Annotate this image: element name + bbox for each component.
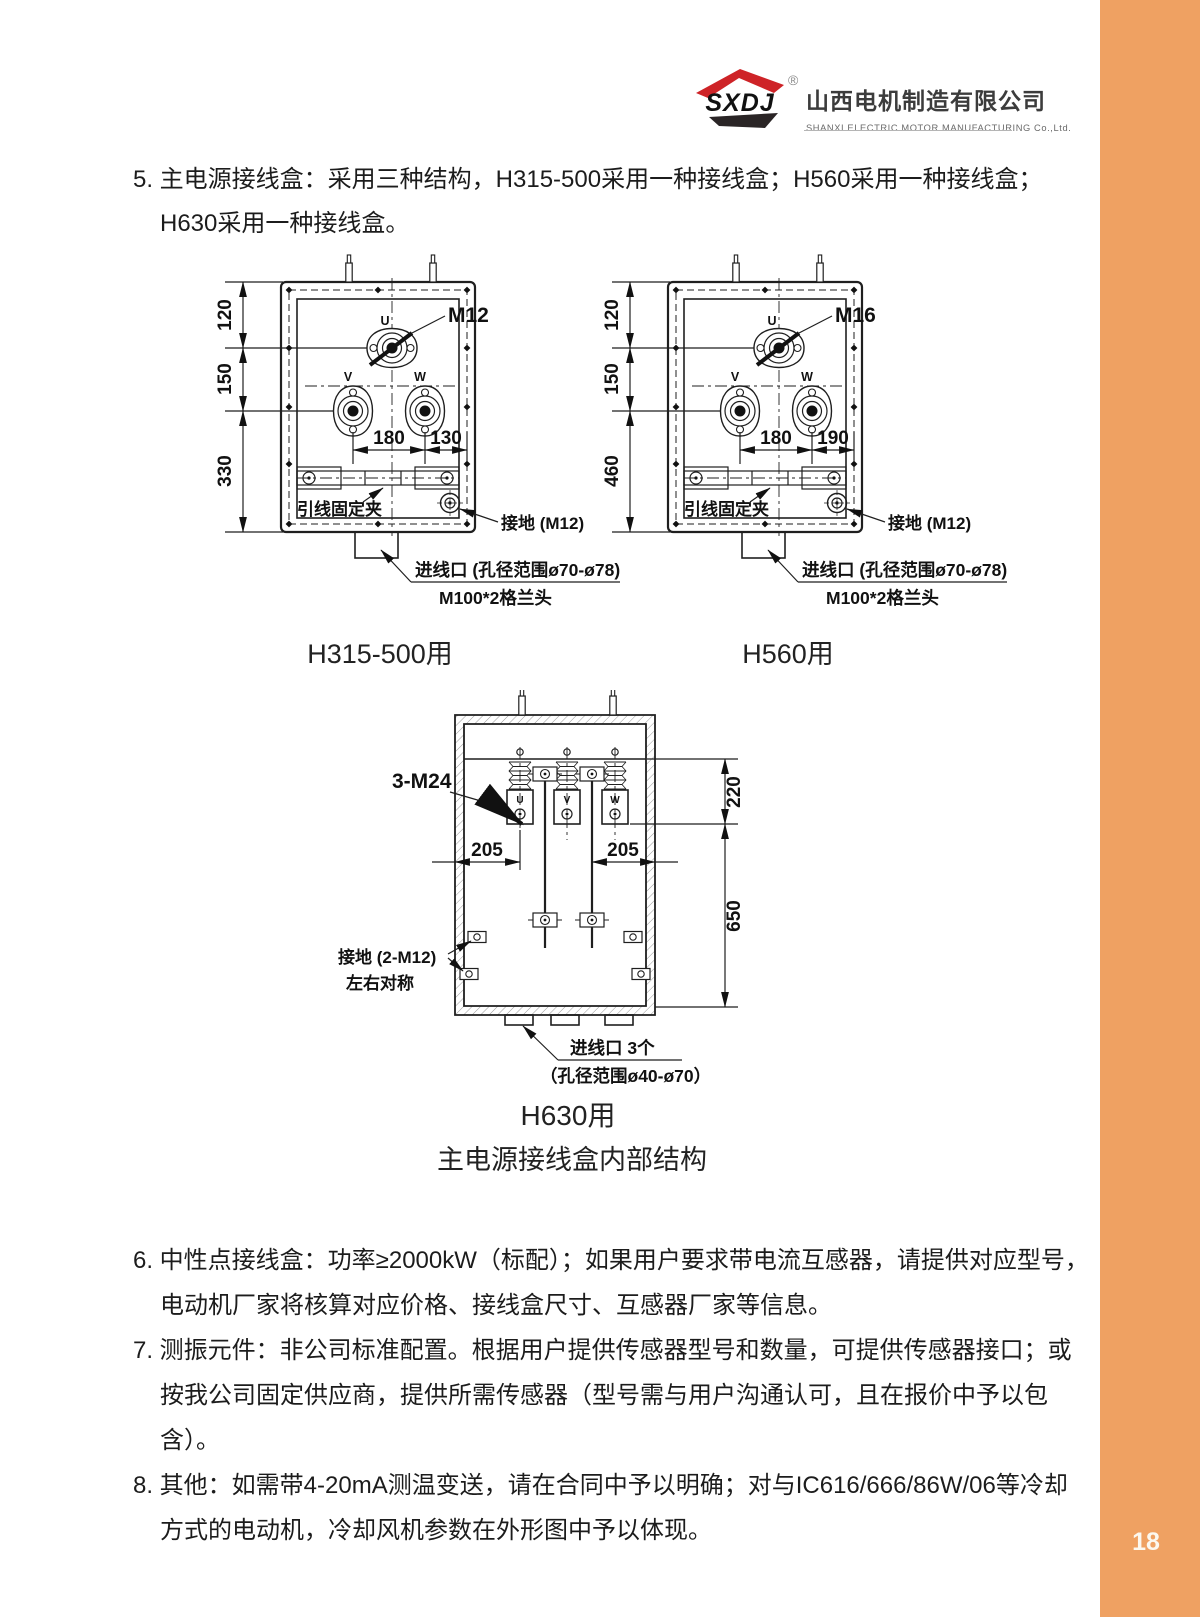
company-name-cn: 山西电机制造有限公司 bbox=[806, 82, 1071, 116]
clip-callout: 引线固定夹 bbox=[297, 488, 383, 519]
bolt-spec-label: M12 bbox=[448, 304, 489, 327]
company-logo: SXDJ bbox=[694, 66, 786, 135]
note-5-line-2: H630采用一种接线盒。 bbox=[133, 202, 1093, 246]
terminal-u-label: U bbox=[767, 314, 776, 328]
inlet-line-1: 进线口 3个 bbox=[570, 1038, 655, 1058]
bolt-spec-label: 3-M24 bbox=[392, 770, 452, 793]
note-6-line-1: 6. 中性点接线盒：功率≥2000kW（标配）；如果用户要求带电流互感器，请提供… bbox=[133, 1238, 1098, 1283]
inlet-line-2: （孔径范围ø40-ø70） bbox=[540, 1066, 711, 1086]
notes-6-7-8: 6. 中性点接线盒：功率≥2000kW（标配）；如果用户要求带电流互感器，请提供… bbox=[133, 1238, 1098, 1553]
terminal-insulators: U V W bbox=[507, 747, 628, 840]
terminal-w-label: W bbox=[801, 370, 813, 384]
cable-clamp-icon bbox=[575, 913, 609, 927]
catalog-page: 18 SXDJ ® 山西电机制造有限公司 SHANXI ELECTRIC MOT… bbox=[0, 0, 1200, 1617]
figure-caption-h560: H560用 bbox=[688, 632, 888, 671]
cable-clip-bar bbox=[684, 467, 846, 489]
dim-330: 330 bbox=[215, 455, 236, 487]
dim-120: 120 bbox=[602, 299, 623, 331]
clip-label: 引线固定夹 bbox=[297, 499, 382, 519]
note-5-line-1: 5. 主电源接线盒：采用三种结构，H315-500采用一种接线盒；H560采用一… bbox=[133, 158, 1093, 202]
inlet-line-2: M100*2格兰头 bbox=[439, 588, 552, 608]
logo-abbr-text: SXDJ bbox=[705, 89, 774, 117]
note-5: 5. 主电源接线盒：采用三种结构，H315-500采用一种接线盒；H560采用一… bbox=[133, 158, 1093, 246]
bolt-spec-label: M16 bbox=[835, 304, 876, 327]
wall-ground-bolts bbox=[460, 932, 650, 980]
ground-label: 接地 (M12) bbox=[888, 513, 971, 533]
dim-180: 180 bbox=[760, 428, 792, 449]
terminal-u-label: U bbox=[380, 314, 389, 328]
horizontal-dimensions: 180 190 bbox=[740, 428, 854, 462]
dim-190: 190 bbox=[817, 428, 849, 449]
inlet-callout: 进线口 3个 （孔径范围ø40-ø70） bbox=[505, 1015, 711, 1086]
ground-label-line-2: 左右对称 bbox=[346, 973, 414, 993]
inlet-callout: 进线口 (孔径范围ø70-ø78) M100*2格兰头 bbox=[742, 532, 1007, 608]
figure-caption-h315-500: H315-500用 bbox=[280, 632, 480, 671]
inlet-line-2: M100*2格兰头 bbox=[826, 588, 939, 608]
terminal-w-label: W bbox=[610, 795, 620, 806]
clip-callout: 引线固定夹 bbox=[684, 488, 770, 519]
ground-label-line-1: 接地 (2-M12) bbox=[338, 947, 436, 967]
inlet-callout: 进线口 (孔径范围ø70-ø78) M100*2格兰头 bbox=[355, 532, 620, 608]
cable-clip-bar bbox=[297, 467, 459, 489]
dim-205-left: 205 bbox=[471, 840, 503, 861]
page-number: 18 bbox=[1100, 1528, 1192, 1557]
figure-caption-h630: H630用 bbox=[468, 1094, 668, 1134]
note-6-line-2: 电动机厂家将核算对应价格、接线盒尺寸、互感器厂家等信息。 bbox=[133, 1283, 1098, 1328]
company-name-block: 山西电机制造有限公司 SHANXI ELECTRIC MOTOR MANUFAC… bbox=[806, 82, 1071, 133]
dim-460: 460 bbox=[602, 455, 623, 487]
cable-clamp-icon bbox=[528, 913, 562, 927]
ground-label: 接地 (M12) bbox=[501, 513, 584, 533]
header-divider bbox=[804, 130, 1012, 131]
figure-h560-terminal-box: 120 150 460 U V W bbox=[592, 252, 1012, 652]
terminal-v-label: V bbox=[731, 370, 740, 384]
mounting-bolt-icon bbox=[344, 255, 355, 282]
dim-120: 120 bbox=[215, 299, 236, 331]
dim-130: 130 bbox=[430, 428, 462, 449]
mounting-bolt-icon bbox=[428, 255, 439, 282]
mounting-bolt-icon bbox=[815, 255, 826, 282]
terminal-u-label: U bbox=[516, 795, 523, 806]
note-8-line-1: 8. 其他：如需带4-20mA测温变送，请在合同中予以明确；对与IC616/66… bbox=[133, 1463, 1098, 1508]
cable-clamp-icon bbox=[528, 767, 562, 781]
figure-h315-500-terminal-box: 120 150 330 U V W bbox=[205, 252, 625, 652]
figures-subtitle: 主电源接线盒内部结构 bbox=[420, 1138, 724, 1177]
note-8-line-2: 方式的电动机，冷却风机参数在外形图中予以体现。 bbox=[133, 1508, 1098, 1553]
inlet-line-1: 进线口 (孔径范围ø70-ø78) bbox=[802, 560, 1007, 580]
figure-h630-terminal-box: U V W 3-M24 bbox=[330, 690, 790, 1110]
company-name-en: SHANXI ELECTRIC MOTOR MANUFACTURING Co.,… bbox=[806, 123, 1071, 133]
terminal-v-label: V bbox=[564, 795, 571, 806]
note-7-line-1: 7. 测振元件：非公司标准配置。根据用户提供传感器型号和数量，可提供传感器接口；… bbox=[133, 1328, 1098, 1373]
mounting-bolt-icon bbox=[517, 690, 528, 715]
ground-bolt-icon bbox=[624, 932, 642, 943]
dim-150: 150 bbox=[602, 363, 623, 395]
dim-150: 150 bbox=[215, 363, 236, 395]
clip-label: 引线固定夹 bbox=[684, 499, 769, 519]
ground-bolt-icon bbox=[632, 969, 650, 980]
terminal-v-label: V bbox=[344, 370, 353, 384]
dim-205-right: 205 bbox=[607, 840, 639, 861]
horizontal-dimensions: 180 130 bbox=[353, 428, 467, 462]
note-7-line-2: 按我公司固定供应商，提供所需传感器（型号需与用户沟通认可，且在报价中予以包含）。 bbox=[133, 1373, 1098, 1463]
ground-callout: 接地 (2-M12) 左右对称 bbox=[338, 941, 471, 993]
terminal-v-icon bbox=[334, 386, 373, 436]
terminal-v-icon bbox=[721, 386, 760, 436]
dim-650: 650 bbox=[724, 900, 745, 932]
terminal-w-label: W bbox=[414, 370, 426, 384]
horizontal-dimensions: 205 205 bbox=[432, 830, 678, 870]
mounting-bolt-icon bbox=[731, 255, 742, 282]
cable-clamp-icon bbox=[575, 767, 609, 781]
inlet-line-1: 进线口 (孔径范围ø70-ø78) bbox=[415, 560, 620, 580]
dim-220: 220 bbox=[724, 776, 745, 808]
registered-trademark-icon: ® bbox=[788, 72, 798, 88]
dim-180: 180 bbox=[373, 428, 405, 449]
right-accent-bar bbox=[1100, 0, 1200, 1617]
mounting-bolt-icon bbox=[608, 690, 619, 715]
